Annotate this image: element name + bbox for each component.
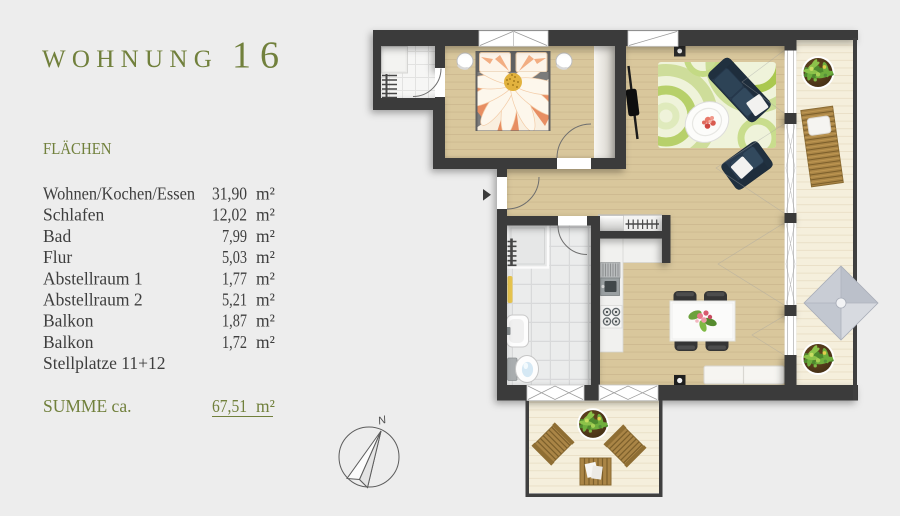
svg-text:Abstellraum 2: Abstellraum 2 (43, 290, 143, 310)
svg-text:m²: m² (256, 396, 275, 416)
svg-text:m²: m² (256, 268, 275, 288)
svg-text:m²: m² (256, 290, 275, 310)
svg-text:Flur: Flur (43, 247, 72, 267)
svg-text:Stellplatze 11+12: Stellplatze 11+12 (43, 353, 165, 373)
svg-text:67,51: 67,51 (212, 396, 247, 416)
svg-text:Balkon: Balkon (43, 311, 94, 331)
svg-text:1,87: 1,87 (222, 311, 247, 331)
svg-text:m²: m² (256, 247, 275, 267)
svg-text:m²: m² (256, 332, 275, 352)
svg-text:Schlafen: Schlafen (43, 205, 104, 225)
svg-text:12,02: 12,02 (212, 205, 247, 225)
svg-text:WOHNUNG: WOHNUNG (42, 46, 220, 73)
svg-text:5,21: 5,21 (222, 290, 247, 310)
svg-text:SUMME ca.: SUMME ca. (43, 396, 131, 416)
svg-text:Bad: Bad (43, 226, 71, 246)
svg-text:1,77: 1,77 (222, 268, 247, 288)
svg-text:m²: m² (256, 311, 275, 331)
svg-text:m²: m² (256, 184, 275, 204)
svg-text:Balkon: Balkon (43, 332, 94, 352)
svg-text:FLÄCHEN: FLÄCHEN (43, 139, 112, 158)
svg-text:m²: m² (256, 226, 275, 246)
svg-text:31,90: 31,90 (212, 184, 247, 204)
svg-text:7,99: 7,99 (222, 226, 247, 246)
svg-text:Wohnen/Kochen/Essen: Wohnen/Kochen/Essen (43, 184, 195, 204)
svg-text:5,03: 5,03 (222, 247, 247, 267)
svg-text:m²: m² (256, 205, 275, 225)
svg-text:1,72: 1,72 (222, 332, 247, 352)
svg-text:Abstellraum 1: Abstellraum 1 (43, 268, 143, 288)
